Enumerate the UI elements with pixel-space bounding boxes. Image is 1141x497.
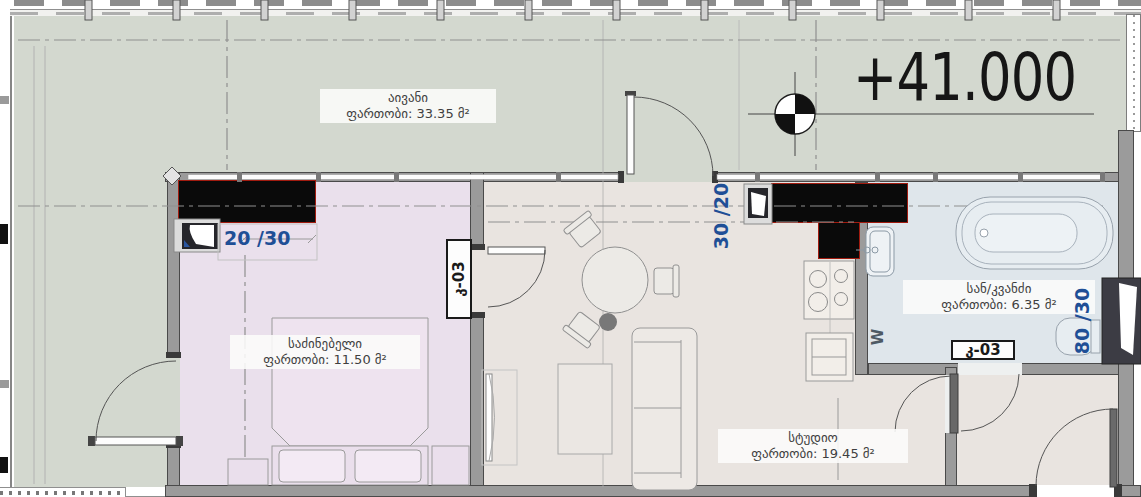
opening-entrance (1037, 485, 1114, 497)
wall-section-fill (0, 224, 8, 244)
wall-east (1118, 130, 1134, 487)
room-area: ფართობი: 19.45 მ² (722, 446, 904, 462)
wall-bottom (165, 485, 1141, 497)
wall-section-fill (0, 457, 8, 473)
balcony-railing-bottom (0, 487, 125, 497)
door-tag-bedroom: კ-03 (446, 239, 472, 319)
opening-bedroom-studio (470, 250, 484, 312)
bedroom-wardrobe (178, 180, 316, 223)
room-name: საძინებელი (234, 336, 416, 352)
dimension-30-20: 30 /20 (710, 180, 732, 252)
room-label-studio: სტუდიო ფართობი: 19.45 მ² (718, 429, 908, 463)
wall-bedroom-studio (470, 172, 484, 487)
room-label-bedroom: საძინებელი ფართობი: 11.50 მ² (230, 335, 420, 369)
jamb (166, 442, 181, 448)
room-label-balcony: აივანი ფართობი: 33.35 მ² (320, 89, 496, 123)
dimension-80-30: 80 /30 (1071, 284, 1093, 358)
kitchen-counter-leg (818, 222, 860, 259)
room-name: სტუდიო (722, 430, 904, 446)
room-area: ფართობი: 11.50 მ² (234, 352, 416, 368)
floor-plan: +41.000 აივანი ფართობი: 33.35 მ² საძინებ… (0, 0, 1141, 497)
jamb (618, 171, 624, 183)
kitchen-counter (771, 183, 908, 223)
room-name: სან/კვანძი (907, 281, 1091, 297)
elevation-label: +41.000 (853, 45, 1076, 111)
balcony-column-right (1126, 14, 1141, 132)
wall-tick (0, 380, 9, 388)
dimension-20-30: 20 /30 (224, 227, 290, 249)
room-label-bathroom: სან/კვანძი ფართობი: 6.35 მ² (903, 280, 1095, 314)
room-area: ფართობი: 6.35 მ² (907, 297, 1091, 313)
opening-studio-hall (945, 375, 957, 433)
room-entry-hall (957, 375, 1118, 485)
room-name: აივანი (324, 90, 492, 106)
wall-tick (0, 96, 9, 104)
jamb (166, 352, 181, 358)
jamb (1114, 484, 1122, 497)
door-tag-bathroom: კ-03 (951, 340, 1015, 360)
balcony-railing-top (14, 0, 1141, 6)
room-balcony-left-wing (14, 172, 167, 487)
room-area: ფართობი: 33.35 მ² (324, 106, 492, 122)
washing-machine-label: W (869, 329, 887, 346)
jamb (1029, 484, 1037, 497)
opening-balcony-studio (624, 172, 712, 182)
opening-bath-hall (958, 363, 1022, 375)
opening-balcony-bedroom (167, 358, 180, 442)
